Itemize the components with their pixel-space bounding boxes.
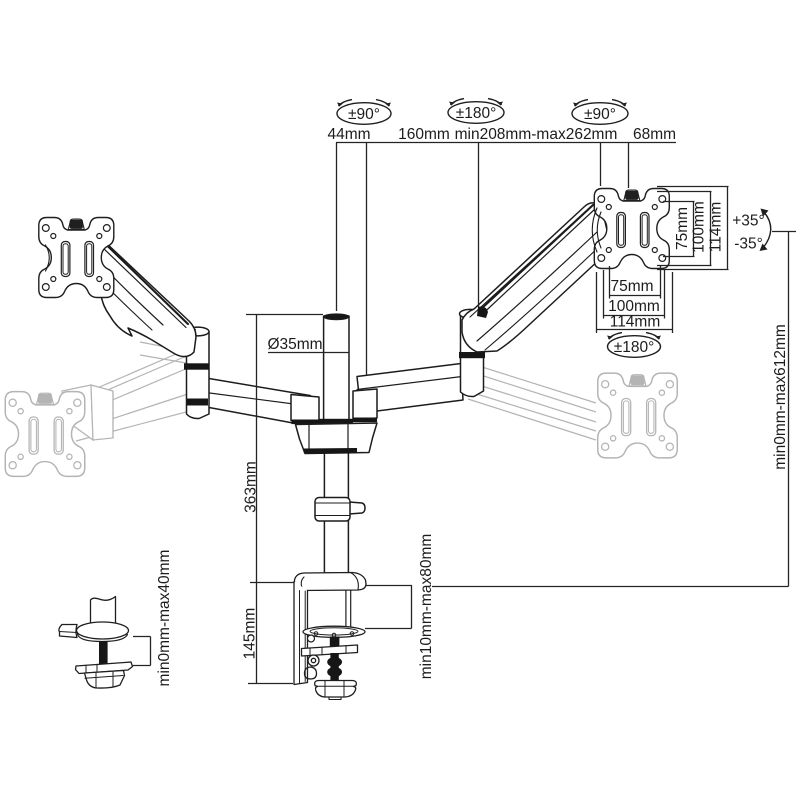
svg-text:min0mm-max40mm: min0mm-max40mm (156, 550, 173, 687)
svg-text:min0mm-max612mm: min0mm-max612mm (772, 324, 789, 470)
svg-text:114mm: 114mm (610, 314, 661, 331)
svg-text:min10mm-max80mm: min10mm-max80mm (418, 534, 435, 680)
svg-text:114mm: 114mm (708, 202, 725, 253)
svg-text:±180°: ±180° (456, 105, 497, 122)
svg-text:160mm: 160mm (398, 126, 450, 143)
svg-text:min208mm-max262mm: min208mm-max262mm (455, 126, 618, 143)
svg-text:-35°: -35° (734, 236, 763, 253)
svg-text:363mm: 363mm (242, 461, 259, 513)
svg-text:+35°: +35° (732, 213, 765, 230)
svg-text:±90°: ±90° (348, 106, 380, 123)
svg-text:100mm: 100mm (608, 298, 660, 315)
svg-text:75mm: 75mm (610, 278, 653, 295)
svg-text:68mm: 68mm (633, 126, 676, 143)
svg-text:Ø35mm: Ø35mm (267, 336, 322, 353)
svg-text:44mm: 44mm (327, 126, 370, 143)
svg-text:75mm: 75mm (674, 207, 691, 250)
svg-text:±180°: ±180° (614, 339, 655, 356)
svg-text:±90°: ±90° (584, 106, 616, 123)
svg-text:100mm: 100mm (690, 201, 707, 253)
svg-text:145mm: 145mm (241, 608, 258, 660)
